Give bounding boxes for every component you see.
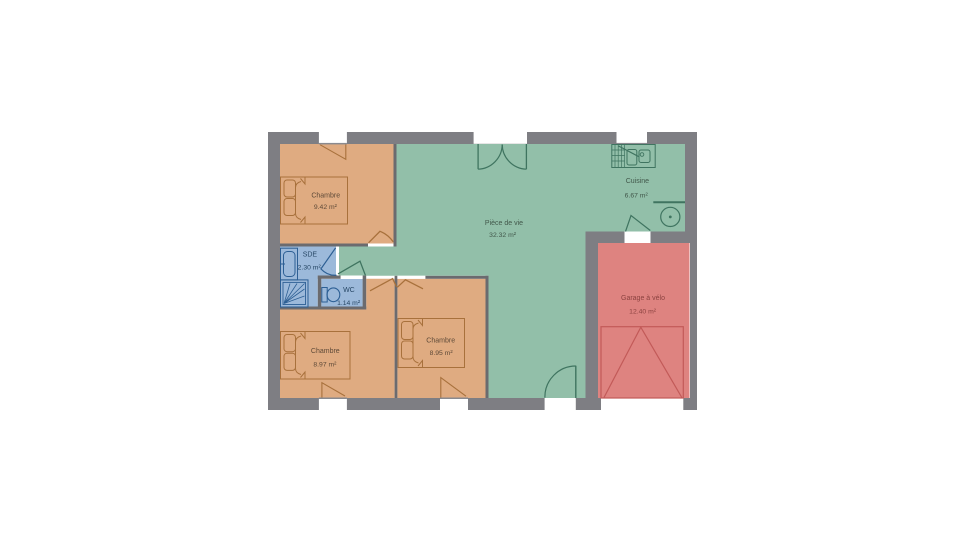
svg-text:Cuisine: Cuisine	[626, 178, 649, 185]
svg-text:SDE: SDE	[303, 251, 318, 258]
svg-text:1.14 m²: 1.14 m²	[337, 300, 361, 307]
svg-text:32.32 m²: 32.32 m²	[489, 232, 517, 239]
svg-text:9.42 m²: 9.42 m²	[314, 204, 338, 211]
svg-text:2.30 m²: 2.30 m²	[298, 264, 322, 271]
svg-text:Chambre: Chambre	[311, 348, 340, 355]
svg-text:Garage à vélo: Garage à vélo	[621, 295, 665, 302]
svg-text:8.95 m²: 8.95 m²	[430, 350, 454, 357]
svg-text:Pièce de vie: Pièce de vie	[485, 220, 523, 227]
svg-text:8.97 m²: 8.97 m²	[313, 362, 337, 369]
svg-text:12.40 m²: 12.40 m²	[629, 309, 657, 316]
svg-text:6.67 m²: 6.67 m²	[625, 193, 649, 200]
svg-text:Chambre: Chambre	[311, 193, 340, 200]
svg-text:Chambre: Chambre	[426, 337, 455, 344]
svg-text:WC: WC	[343, 287, 355, 294]
